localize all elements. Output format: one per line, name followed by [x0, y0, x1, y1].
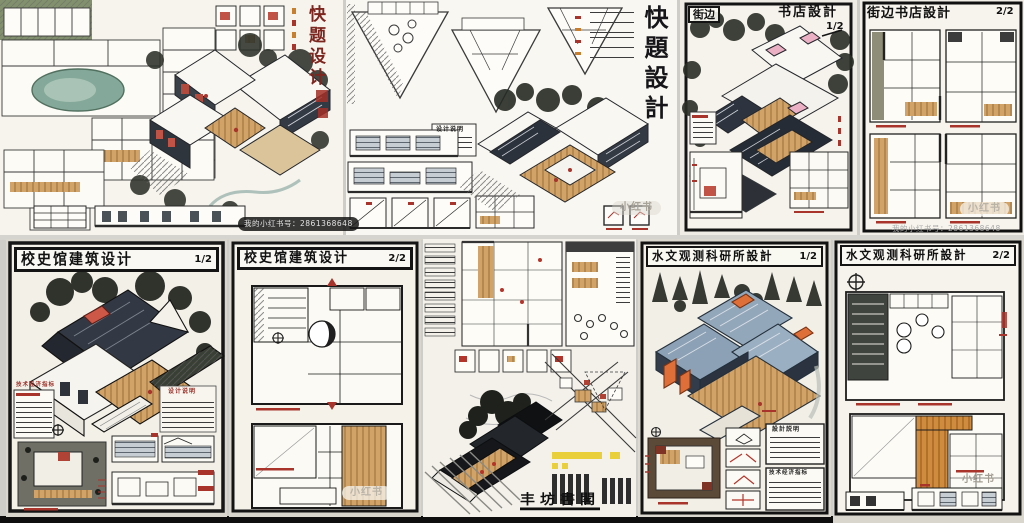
detail-thumbnails-row — [455, 350, 571, 372]
board9-title: 水文观测科研所設計 2/2 — [840, 245, 1016, 266]
right-floor-plan — [566, 242, 634, 346]
board2-title: 快題設計 — [642, 5, 666, 129]
board9-sheet-number: 2/2 — [992, 251, 1010, 261]
board5-design-notes-label: 设计说明 — [168, 389, 196, 395]
xiaohongshu-account-text: 我的小红书号：2861368648 — [892, 225, 1001, 233]
xiaohongshu-watermark-3: 小红书 — [342, 486, 391, 500]
floor-plan-1 — [870, 30, 940, 128]
board3-title-suffix: 书店設計 — [778, 6, 838, 19]
board1-title: 快题设计 — [306, 5, 323, 91]
notes-box — [690, 112, 716, 144]
sketch-collage: 快题设计 快題設計 街边 书店設計 1/2 街边书店設計 2/2 校史馆建筑设计… — [0, 0, 1024, 523]
board8-title-text: 水文观测科研所設計 — [652, 250, 774, 262]
xiaohongshu-watermark-1: 小红书 — [612, 201, 661, 215]
floor-plan-3 — [870, 134, 940, 224]
plan-strip — [790, 152, 848, 213]
board8-tech-index-label: 技术经济指标 — [769, 471, 808, 477]
xiaohongshu-watermark-2: 小红书 — [960, 202, 1009, 216]
board6-title: 校史馆建筑设计 2/2 — [237, 247, 413, 270]
xiaohongshu-watermark-4: 小红书 — [954, 473, 1003, 487]
board4-sheet-number: 2/2 — [996, 7, 1014, 17]
main-floor-plan — [462, 242, 562, 346]
board-history-museum-1 — [6, 239, 227, 517]
floor-plan-upper — [846, 292, 1007, 406]
board6-sheet-number: 2/2 — [388, 254, 406, 264]
board8-sheet-number: 1/2 — [799, 252, 817, 262]
board-quick-design-2 — [346, 0, 677, 235]
site-plan — [18, 442, 106, 511]
board5-title-text: 校史馆建筑设计 — [21, 252, 133, 267]
board-dense-renovation — [423, 239, 636, 517]
board-history-museum-2 — [229, 239, 421, 517]
board6-title-text: 校史馆建筑设计 — [244, 252, 349, 266]
board3-sheet-number: 1/2 — [826, 22, 844, 32]
board3-title-prefix: 街边 — [688, 6, 720, 23]
north-arrow-icon — [651, 427, 661, 437]
bottom-elevation-strip — [34, 206, 245, 228]
floor-plan-upper — [252, 278, 402, 411]
board-bookstore-1 — [680, 0, 857, 235]
xiaohongshu-account-pill: 我的小红书号：2861368648 — [238, 217, 359, 231]
board5-sheet-number: 1/2 — [194, 255, 212, 265]
section-box — [690, 152, 742, 218]
site-plan — [645, 438, 720, 505]
board-quick-design-1 — [0, 0, 343, 235]
board2-design-notes-label: 设计说明 — [436, 127, 464, 133]
floor-plan-2 — [946, 30, 1016, 128]
spec-table — [14, 390, 54, 438]
board-bookstore-2 — [860, 0, 1024, 235]
board8-title: 水文观测科研所設計 1/2 — [646, 246, 823, 267]
board5-tech-index-label: 技术经济指标 — [16, 383, 55, 389]
board8-design-notes-label: 設計説明 — [772, 427, 800, 433]
floor-plan-lower — [850, 414, 1004, 500]
board4-title: 街边书店設計 — [867, 7, 951, 20]
board5-title: 校史馆建筑设计 1/2 — [14, 247, 219, 272]
board7-stylized-title: 丰坊書閣 — [520, 493, 600, 510]
board9-title-text: 水文观测科研所設計 — [846, 249, 968, 261]
